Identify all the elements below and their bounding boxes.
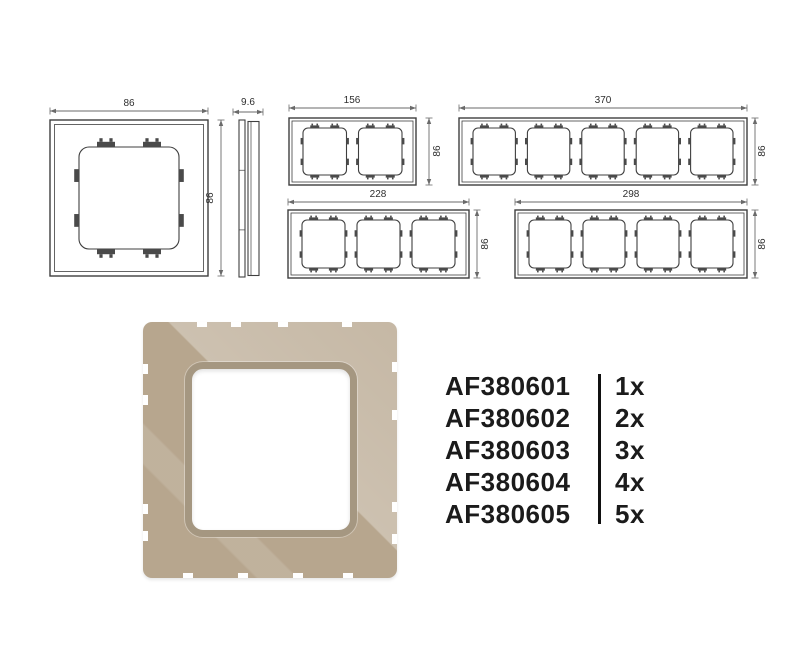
photo-edge-notch: [143, 364, 148, 374]
svg-text:86: 86: [757, 145, 768, 157]
drawing-1gang-front: 8686: [50, 98, 225, 276]
svg-text:86: 86: [205, 192, 216, 204]
product-code: AF380602: [445, 402, 615, 434]
product-code: AF380605: [445, 498, 615, 530]
svg-text:228: 228: [370, 189, 387, 200]
product-sheet: 86869.615686370862288629886 AF3806011xAF…: [0, 0, 800, 655]
svg-text:86: 86: [757, 238, 768, 250]
svg-text:370: 370: [595, 95, 612, 106]
product-code-list: AF3806011xAF3806022xAF3806033xAF3806044x…: [445, 370, 645, 530]
photo-edge-notch: [342, 322, 352, 327]
technical-drawings: 86869.615686370862288629886: [0, 0, 800, 310]
product-code: AF380604: [445, 466, 615, 498]
drawing-4gang-front: 29886: [515, 189, 768, 278]
drawing-side-profile: 9.6: [233, 97, 263, 277]
product-quantity: 5x: [615, 498, 645, 530]
product-code-row: AF3806033x: [445, 434, 645, 466]
photo-edge-notch: [293, 573, 303, 578]
photo-edge-notch: [231, 322, 241, 327]
product-code-row: AF3806044x: [445, 466, 645, 498]
photo-edge-notch: [143, 395, 148, 405]
photo-edge-notch: [143, 531, 148, 541]
svg-text:156: 156: [344, 95, 361, 106]
photo-edge-notch: [278, 322, 288, 327]
photo-edge-notch: [143, 504, 148, 514]
product-code-row: AF3806011x: [445, 370, 645, 402]
product-quantity: 4x: [615, 466, 645, 498]
svg-text:86: 86: [123, 98, 135, 109]
drawing-3gang-front: 22886: [288, 189, 491, 278]
photo-edge-notch: [343, 573, 353, 578]
photo-edge-notch: [183, 573, 193, 578]
svg-text:298: 298: [623, 189, 640, 200]
photo-edge-notch: [392, 362, 397, 372]
svg-text:9.6: 9.6: [241, 97, 255, 108]
product-quantity: 2x: [615, 402, 645, 434]
product-code-row: AF3806055x: [445, 498, 645, 530]
photo-edge-notch: [392, 410, 397, 420]
svg-text:86: 86: [480, 238, 491, 250]
photo-edge-notch: [238, 573, 248, 578]
code-list-divider: [598, 374, 601, 524]
product-quantity: 1x: [615, 370, 645, 402]
product-quantity: 3x: [615, 434, 645, 466]
svg-text:86: 86: [432, 145, 443, 157]
product-photo-1gang-frame: [143, 322, 397, 578]
drawing-2gang-front: 15686: [289, 95, 443, 185]
photo-frame-opening: [185, 362, 357, 537]
photo-edge-notch: [392, 534, 397, 544]
photo-edge-notch: [197, 322, 207, 327]
product-code: AF380603: [445, 434, 615, 466]
photo-edge-notch: [392, 502, 397, 512]
product-code-row: AF3806022x: [445, 402, 645, 434]
product-code: AF380601: [445, 370, 615, 402]
drawing-5gang-front: 37086: [459, 95, 768, 185]
